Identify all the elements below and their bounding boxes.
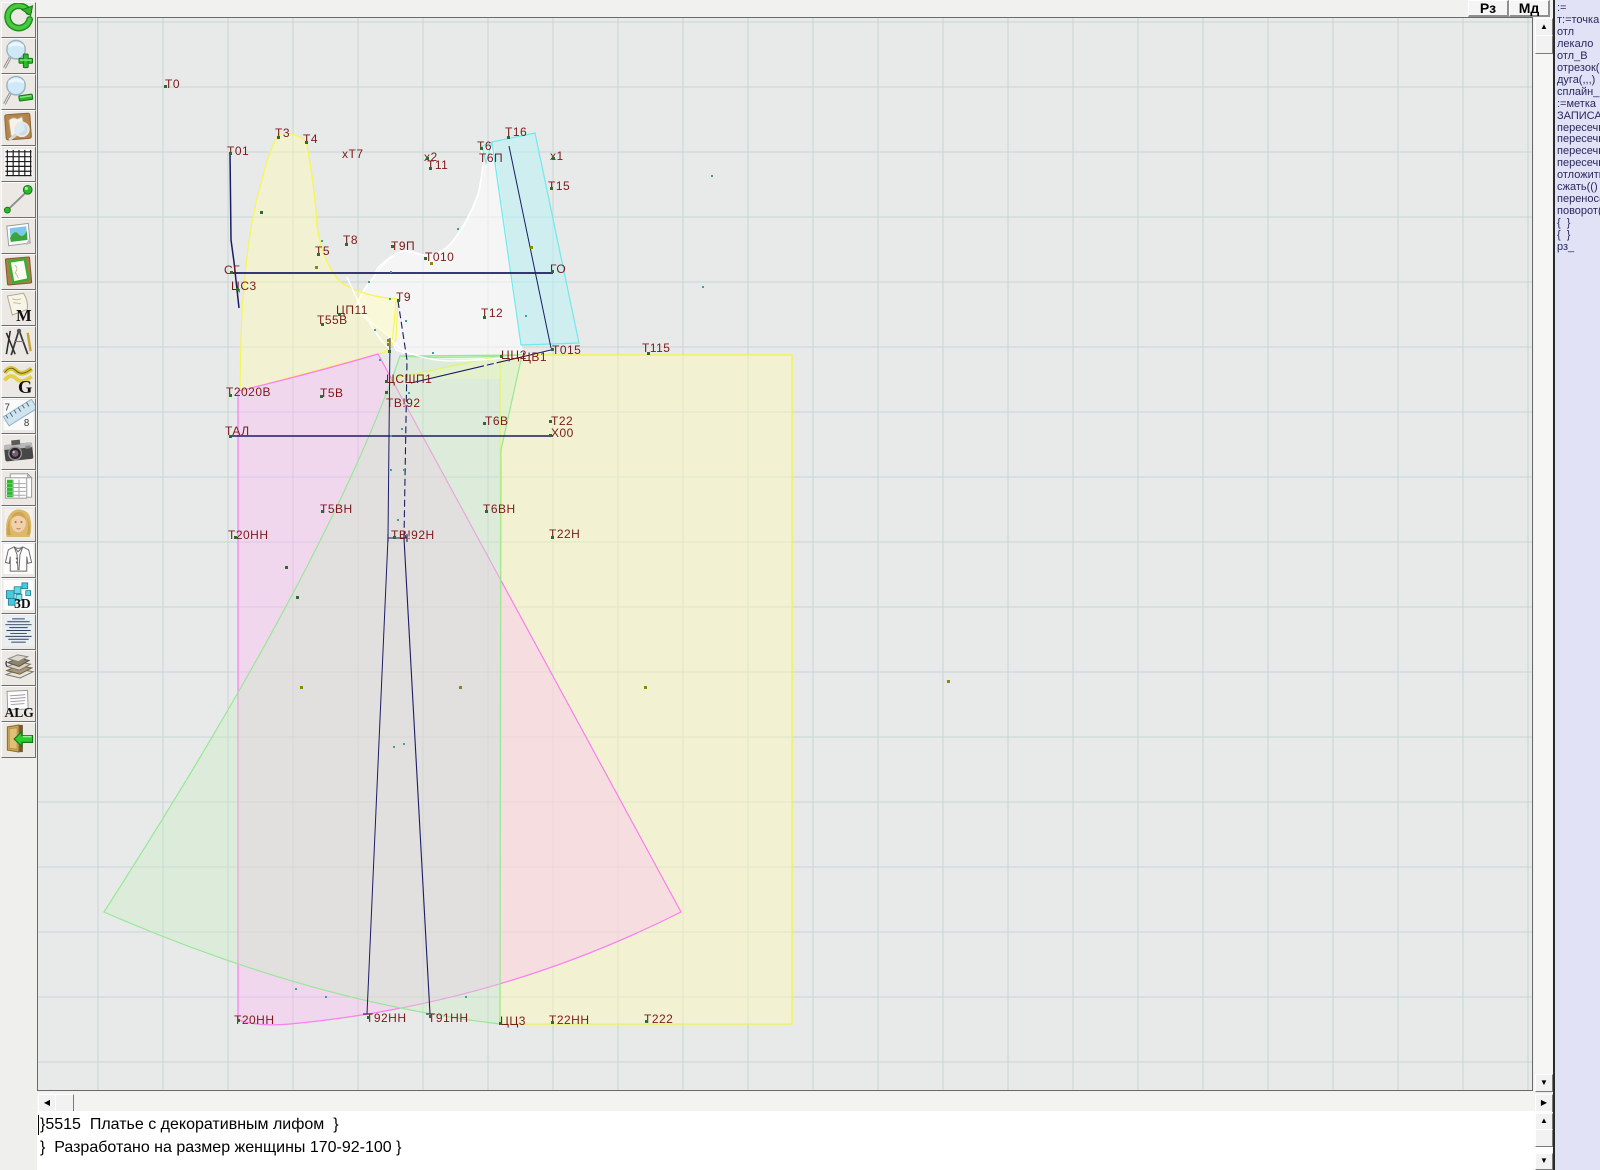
svg-text:ЦС3: ЦС3 xyxy=(231,279,257,293)
svg-text:Т6В: Т6В xyxy=(485,414,509,428)
svg-text:Х00: Х00 xyxy=(551,426,574,440)
svg-text:Т5В: Т5В xyxy=(320,386,344,400)
svg-text:ЦЦ3: ЦЦ3 xyxy=(500,1014,526,1028)
svg-text:Т9П: Т9П xyxy=(391,239,415,253)
svg-text:ЦСШП1: ЦСШП1 xyxy=(386,372,432,386)
svg-text:Т6ВН: Т6ВН xyxy=(483,502,516,516)
svg-text:Т20НН: Т20НН xyxy=(228,528,269,542)
svg-text:ЦВ1: ЦВ1 xyxy=(522,350,547,364)
svg-text:ТВ!92: ТВ!92 xyxy=(386,396,421,410)
svg-text:Т92НН: Т92НН xyxy=(366,1011,407,1025)
svg-text:Т91НН: Т91НН xyxy=(428,1011,469,1025)
svg-text:Т5ВН: Т5ВН xyxy=(320,502,353,516)
svg-text:Т0: Т0 xyxy=(165,77,180,91)
svg-text:Т22НН: Т22НН xyxy=(549,1013,590,1027)
svg-text:Т20НН: Т20НН xyxy=(234,1013,275,1027)
svg-text:ALG: ALG xyxy=(4,705,34,719)
svg-text:Т115: Т115 xyxy=(642,341,670,355)
svg-text:G: G xyxy=(18,377,32,395)
svg-text:7: 7 xyxy=(4,403,9,414)
svg-text:M: M xyxy=(16,306,32,323)
svg-text:Т01: Т01 xyxy=(227,144,249,158)
svg-text:3D: 3D xyxy=(14,596,31,611)
svg-text:Т15: Т15 xyxy=(548,179,570,193)
svg-text:ТАЛ: ТАЛ xyxy=(225,424,250,438)
svg-text:Т222: Т222 xyxy=(644,1012,673,1026)
svg-text:хТ7: хТ7 xyxy=(342,147,364,161)
svg-text:ГО: ГО xyxy=(550,262,566,276)
svg-text:8: 8 xyxy=(24,418,29,429)
svg-text:СГ: СГ xyxy=(224,263,240,277)
svg-text:Т6П: Т6П xyxy=(479,151,503,165)
svg-text:Т015: Т015 xyxy=(552,343,581,357)
svg-text:х1: х1 xyxy=(550,149,564,163)
svg-text:Т010: Т010 xyxy=(425,250,454,264)
svg-text:Т2020В: Т2020В xyxy=(226,385,271,399)
svg-text:ТВ!92Н: ТВ!92Н xyxy=(391,528,435,542)
